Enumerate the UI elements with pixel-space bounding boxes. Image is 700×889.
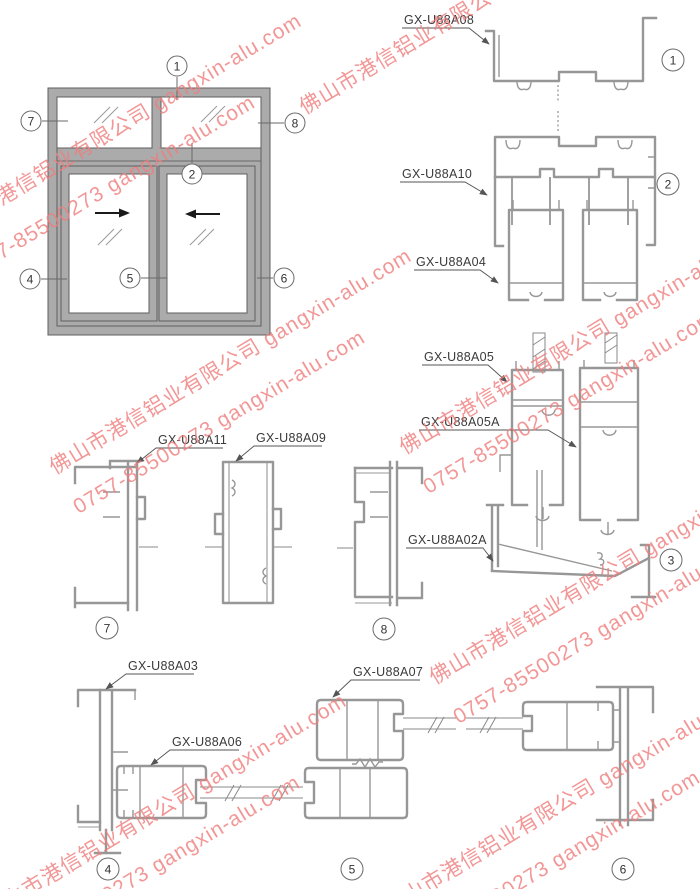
label-a11: GX-U88A11 bbox=[158, 433, 227, 447]
callout-det-7-num: 7 bbox=[104, 622, 111, 636]
label-a04: GX-U88A04 bbox=[416, 255, 486, 269]
window-elevation: 1 7 8 2 4 5 6 bbox=[20, 56, 305, 335]
jamb-detail-6: 6 bbox=[523, 687, 653, 880]
callout-det-4-num: 4 bbox=[105, 863, 112, 877]
callout-det-6-num: 6 bbox=[620, 863, 627, 877]
label-a07: GX-U88A07 bbox=[353, 665, 423, 679]
label-a05a: GX-U88A05A bbox=[421, 415, 500, 429]
leader-a09 bbox=[236, 446, 322, 461]
section-callouts: 1 2 3 bbox=[657, 49, 684, 571]
jamb-detail-4: 4 bbox=[78, 690, 135, 880]
glass-break-bars bbox=[533, 333, 617, 372]
callout-4-num: 4 bbox=[27, 273, 34, 287]
label-a10: GX-U88A10 bbox=[402, 167, 472, 181]
leader-a03 bbox=[106, 674, 194, 689]
vertical-section: 1 2 3 bbox=[486, 18, 684, 597]
sash-bottom-profiles bbox=[500, 360, 638, 550]
callout-sec-2-num: 2 bbox=[665, 178, 672, 192]
label-a09: GX-U88A09 bbox=[256, 431, 326, 445]
leader-a02a bbox=[406, 548, 493, 561]
technical-drawing: 1 7 8 2 4 5 6 bbox=[0, 0, 700, 889]
interlock-detail-5: 5 bbox=[305, 700, 523, 880]
jamb-detail-8: 8 bbox=[337, 462, 422, 640]
callout-det-8-num: 8 bbox=[381, 623, 388, 637]
label-a03: GX-U88A03 bbox=[128, 659, 198, 673]
sash-section-a06 bbox=[117, 766, 303, 818]
leader-a04 bbox=[414, 270, 498, 283]
leader-a08 bbox=[402, 28, 489, 44]
callout-5-num: 5 bbox=[127, 272, 134, 286]
leader-a07 bbox=[333, 680, 420, 697]
callout-sec-3-num: 3 bbox=[668, 554, 675, 568]
leader-a06 bbox=[151, 750, 239, 765]
callout-1-num: 1 bbox=[174, 60, 181, 74]
label-a08: GX-U88A08 bbox=[404, 13, 474, 27]
leader-a11 bbox=[137, 448, 223, 463]
callout-sec-1-num: 1 bbox=[670, 54, 677, 68]
label-a06: GX-U88A06 bbox=[172, 735, 242, 749]
leader-a10 bbox=[400, 182, 487, 195]
label-a02a: GX-U88A02A bbox=[408, 533, 487, 547]
leader-a05a bbox=[419, 430, 576, 447]
head-frame-profile bbox=[486, 18, 656, 90]
callout-7-num: 7 bbox=[28, 115, 35, 129]
callout-8-num: 8 bbox=[292, 117, 299, 131]
track-frame-profile bbox=[495, 137, 655, 246]
sash-top-profiles bbox=[509, 200, 637, 300]
callout-6-num: 6 bbox=[281, 272, 288, 286]
drawing-sheet: 1 7 8 2 4 5 6 bbox=[0, 0, 700, 889]
jamb-detail-7: 7 bbox=[75, 461, 158, 639]
fixed-glass-left bbox=[57, 97, 152, 148]
fixed-glass-right bbox=[161, 97, 261, 148]
callout-det-5-num: 5 bbox=[349, 863, 356, 877]
label-a05: GX-U88A05 bbox=[424, 350, 494, 364]
leader-a05 bbox=[422, 365, 507, 382]
callout-2-num: 2 bbox=[189, 168, 196, 182]
mullion-detail bbox=[205, 462, 292, 603]
